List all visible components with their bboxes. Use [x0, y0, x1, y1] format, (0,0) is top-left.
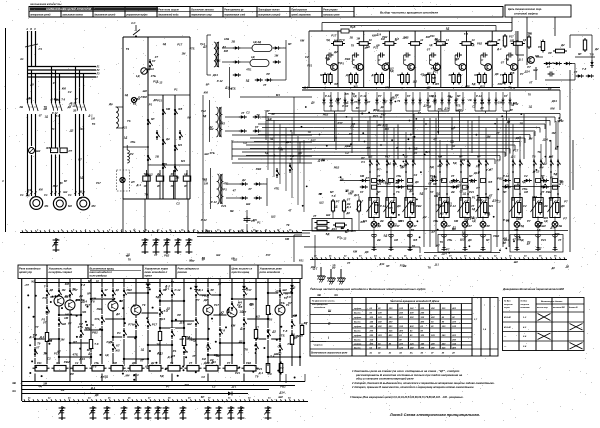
svg-text:К7: К7: [255, 325, 259, 329]
svg-text:4ТБ: 4ТБ: [352, 66, 358, 70]
svg-text:Д2: Д2: [131, 304, 136, 308]
svg-text:скорост: скорост: [504, 304, 513, 306]
svg-text:Т9: Т9: [500, 73, 504, 77]
svg-text:Р17: Р17: [96, 181, 101, 185]
svg-text:Т9: Т9: [559, 179, 563, 183]
svg-text:рсом шпинделя: рсом шпинделя: [259, 270, 281, 274]
svg-text:К7: К7: [407, 94, 411, 98]
svg-text:2В: 2В: [519, 122, 524, 126]
svg-text:400: 400: [430, 316, 435, 319]
svg-text:1М: 1М: [274, 54, 279, 58]
svg-text:2В: 2В: [379, 219, 384, 223]
svg-text:замыкание конта: замыкание конта: [62, 15, 83, 17]
svg-text:Включ: Включ: [354, 331, 361, 333]
svg-text:Р7: Р7: [378, 94, 382, 98]
svg-text:Д-1: Д-1: [164, 287, 170, 291]
svg-text:Р-12: Р-12: [325, 94, 331, 98]
svg-text:К7: К7: [44, 351, 48, 355]
svg-text:Д14: Д14: [278, 390, 285, 394]
svg-text:Тб: Тб: [203, 178, 207, 182]
svg-text:Ш2: Ш2: [439, 204, 444, 208]
svg-text:С2: С2: [497, 199, 501, 203]
svg-text:С2: С2: [28, 188, 32, 192]
svg-text:Тб: Тб: [284, 296, 288, 300]
svg-text:2В: 2В: [175, 176, 180, 180]
svg-text:1М: 1М: [528, 136, 533, 140]
svg-text:8Р: 8Р: [537, 224, 541, 228]
svg-text:Д8: Д8: [135, 97, 140, 101]
svg-text:45-140: 45-140: [503, 326, 512, 329]
svg-text:Д8: Д8: [494, 72, 499, 76]
svg-text:45-140: 45-140: [503, 316, 512, 319]
svg-text:Включаемые: Включаемые: [312, 341, 327, 343]
svg-text:орости вращ: орости вращ: [232, 271, 250, 274]
svg-text:Ш2: Ш2: [326, 213, 331, 217]
svg-text:Р1: Р1: [325, 56, 329, 60]
svg-text:Ш2: Ш2: [63, 190, 68, 194]
svg-text:5Д: 5Д: [450, 140, 454, 144]
svg-text:0Т: 0Т: [451, 174, 455, 178]
svg-text:1М: 1М: [486, 135, 491, 139]
svg-text:Тб: Тб: [93, 365, 97, 369]
svg-text:Д2: Д2: [456, 183, 461, 187]
svg-text:0Т: 0Т: [427, 48, 431, 52]
svg-text:400: 400: [409, 325, 414, 328]
svg-text:Р17: Р17: [513, 149, 518, 153]
svg-text:осле реверса: осле реверса: [90, 275, 108, 278]
svg-text:М4: М4: [181, 159, 185, 163]
svg-text:Ж5: Ж5: [30, 279, 36, 283]
svg-text:С: С: [34, 28, 36, 31]
svg-text:РВ2: РВ2: [497, 177, 503, 181]
svg-text:1Д: 1Д: [124, 135, 128, 139]
svg-text:КМ: КМ: [185, 383, 190, 387]
svg-text:Т-8: Т-8: [56, 114, 60, 118]
svg-text:Ш2: Ш2: [143, 89, 148, 93]
svg-text:Ш2: Ш2: [385, 61, 390, 65]
svg-text:8Р: 8Р: [266, 72, 270, 76]
svg-text:200: 200: [420, 348, 425, 350]
svg-text:1М: 1М: [551, 131, 556, 135]
svg-text:С2: С2: [68, 90, 72, 94]
svg-text:Р7: Р7: [377, 167, 381, 171]
svg-text:0Т: 0Т: [243, 310, 247, 314]
svg-text:4ТБ: 4ТБ: [188, 46, 194, 50]
svg-text:Тб: Тб: [144, 193, 148, 197]
svg-text:Р7: Р7: [128, 323, 132, 327]
svg-text:Включаемые диапаз: Включаемые диапаз: [541, 300, 563, 303]
svg-text:8Р: 8Р: [503, 190, 507, 194]
svg-text:С2: С2: [352, 122, 356, 126]
svg-text:Т-8: Т-8: [61, 98, 65, 102]
svg-text:Д14: Д14: [159, 317, 166, 321]
svg-text:Ш2: Ш2: [36, 149, 41, 153]
svg-text:1Д: 1Д: [125, 93, 129, 97]
svg-text:2В: 2В: [558, 224, 563, 228]
svg-text:Тб: Тб: [451, 127, 455, 131]
svg-text:К7: К7: [288, 301, 292, 305]
svg-text:С1: С1: [44, 193, 48, 197]
svg-text:контакт: контакт: [521, 307, 530, 309]
svg-text:5Д: 5Д: [435, 62, 439, 66]
svg-text:высок скор: высок скор: [537, 307, 549, 309]
svg-text:4Т: 4Т: [417, 111, 422, 115]
svg-text:Р7: Р7: [476, 164, 480, 168]
svg-text:Тб: Тб: [90, 323, 94, 327]
svg-text:Ж5: Ж5: [412, 238, 418, 242]
svg-text:Д8: Д8: [479, 106, 484, 110]
svg-text:муфта: муфта: [354, 325, 362, 328]
svg-text:0Т: 0Т: [347, 197, 351, 201]
svg-text:К7: К7: [432, 230, 436, 234]
svg-text:0Т: 0Т: [496, 131, 500, 135]
svg-text:4ТБ: 4ТБ: [150, 74, 156, 78]
svg-text:400: 400: [369, 343, 374, 346]
svg-text:4ТБ: 4ТБ: [274, 290, 280, 294]
svg-text:4ТБ: 4ТБ: [432, 219, 438, 223]
svg-text:8Р: 8Р: [503, 241, 507, 245]
svg-text:№ Вкл: № Вкл: [521, 300, 528, 303]
svg-text:Р-12: Р-12: [374, 108, 380, 112]
svg-text:стоповой муфты: стоповой муфты: [514, 12, 539, 16]
svg-text:4Т: 4Т: [240, 111, 245, 115]
svg-text:250: 250: [441, 344, 446, 346]
svg-text:6Р: 6Р: [397, 73, 401, 77]
svg-text:Р1: Р1: [341, 61, 345, 65]
svg-text:4Т: 4Т: [451, 144, 456, 148]
svg-text:5Д: 5Д: [29, 96, 33, 100]
svg-text:включен ВМ: включен ВМ: [553, 307, 565, 309]
svg-text:А1: А1: [19, 57, 24, 61]
svg-text:200: 200: [369, 331, 374, 333]
svg-text:КМ: КМ: [438, 155, 443, 159]
svg-text:Цепи на реле ск: Цепи на реле ск: [232, 267, 253, 271]
svg-text:Р17: Р17: [400, 264, 405, 268]
svg-text:400: 400: [451, 307, 456, 310]
svg-text:400: 400: [420, 321, 425, 324]
svg-text:4ТБ: 4ТБ: [395, 174, 401, 178]
svg-text:8Р: 8Р: [298, 152, 302, 156]
svg-text:Ж5: Ж5: [343, 92, 349, 96]
svg-text:8Р: 8Р: [578, 52, 582, 56]
svg-text:2В: 2В: [328, 104, 333, 108]
svg-text:Ш2: Ш2: [209, 127, 214, 131]
svg-text:Р7: Р7: [349, 132, 353, 136]
svg-text:Р7: Р7: [458, 74, 462, 78]
svg-text:6Р: 6Р: [79, 335, 83, 339]
svg-text:К7: К7: [384, 99, 388, 103]
svg-text:рассматривать В качестве со: рассматривать В качестве составных тольк…: [355, 373, 463, 377]
svg-text:6Р: 6Р: [201, 395, 205, 399]
svg-text:Ж5: Ж5: [479, 101, 485, 105]
svg-text:Выключение вращ: Выключение вращ: [90, 267, 115, 271]
svg-text:Р1: Р1: [257, 221, 261, 225]
svg-text:1Д: 1Д: [80, 176, 84, 180]
svg-text:К7: К7: [360, 190, 364, 194]
svg-text:5Д: 5Д: [203, 114, 207, 118]
svg-text:Ш2: Ш2: [187, 322, 192, 326]
svg-text:РВ2: РВ2: [164, 254, 170, 258]
svg-text:С2: С2: [47, 356, 51, 360]
svg-text:0Т: 0Т: [192, 259, 195, 263]
svg-text:Д2: Д2: [156, 172, 161, 176]
svg-text:Р1: Р1: [171, 280, 175, 284]
svg-text:К7: К7: [518, 217, 522, 221]
svg-text:8Р: 8Р: [202, 258, 205, 262]
svg-text:Р-12: Р-12: [211, 200, 217, 204]
svg-text:Д-1: Д-1: [518, 57, 524, 61]
svg-text:Р21: Р21: [235, 371, 240, 375]
svg-text:Р17: Р17: [177, 42, 182, 46]
svg-text:Д2: Д2: [238, 339, 243, 343]
svg-text:Т-8: Т-8: [44, 285, 49, 289]
svg-text:0Т: 0Т: [529, 81, 533, 85]
svg-text:Р17: Р17: [375, 203, 380, 207]
svg-text:4Т: 4Т: [232, 188, 237, 192]
svg-text:1Д: 1Д: [45, 115, 48, 119]
svg-text:Д2: Д2: [560, 43, 565, 47]
svg-text:Управление реве: Управление реве: [260, 267, 283, 271]
svg-text:Д14: Д14: [224, 86, 231, 90]
svg-text:Предохранит: Предохранит: [291, 9, 307, 12]
svg-text:Р7: Р7: [337, 235, 341, 239]
svg-text:Т-8: Т-8: [511, 86, 516, 90]
svg-text:1Д: 1Д: [251, 55, 255, 59]
svg-text:С2: С2: [393, 223, 397, 227]
svg-text:Р1: Р1: [391, 211, 395, 215]
svg-text:Т-8: Т-8: [45, 310, 50, 314]
svg-text:4Т: 4Т: [170, 172, 175, 176]
svg-text:Т-8: Т-8: [33, 333, 38, 337]
svg-text:4Т: 4Т: [432, 138, 437, 142]
svg-text:КМ: КМ: [300, 39, 305, 43]
svg-text:8В: 8В: [230, 209, 234, 213]
svg-text:Р21: Р21: [498, 82, 503, 86]
svg-text:Р1: Р1: [173, 349, 177, 353]
svg-text:цепей управлени: цепей управлени: [291, 14, 311, 17]
svg-text:2В: 2В: [213, 353, 219, 357]
svg-text:Ш2: Ш2: [514, 260, 519, 264]
svg-text:М4: М4: [178, 143, 182, 147]
svg-text:1Д: 1Д: [126, 253, 129, 257]
svg-text:Д2: Д2: [202, 45, 207, 49]
svg-text:Таблица частот вращения шпи: Таблица частот вращения шпинделя и Включ…: [310, 287, 426, 291]
svg-text:5Д: 5Д: [390, 69, 394, 73]
svg-text:Р21: Р21: [37, 361, 42, 365]
svg-text:Д-1: Д-1: [90, 386, 96, 390]
svg-text:Д14: Д14: [441, 252, 448, 256]
svg-text:Р17: Р17: [411, 203, 416, 207]
svg-text:200: 200: [377, 326, 382, 328]
svg-text:Диаграмма Включения переключ: Диаграмма Включения переключателя ВМ: [502, 287, 564, 291]
svg-text:Реле задержки в: Реле задержки в: [178, 267, 200, 271]
svg-text:Р7: Р7: [563, 216, 567, 220]
svg-text:М4: М4: [514, 228, 518, 232]
svg-text:400: 400: [388, 334, 393, 337]
svg-text:6Р: 6Р: [386, 264, 389, 268]
svg-text:4Т: 4Т: [312, 214, 317, 218]
svg-text:ОБОЗНАЧЕНИЕ АППАРАТУРЫ: ОБОЗНАЧЕНИЕ АППАРАТУРЫ: [30, 4, 62, 6]
svg-text:Т-8: Т-8: [221, 329, 226, 333]
svg-text:8Р: 8Р: [288, 42, 292, 46]
svg-text:КМ: КМ: [204, 91, 209, 95]
svg-text:6Р: 6Р: [64, 179, 67, 183]
svg-text:Ж5: Ж5: [79, 127, 85, 131]
svg-text:Р1: Р1: [174, 88, 178, 92]
svg-text:Д2: Д2: [422, 215, 427, 219]
svg-text:Т-8: Т-8: [290, 154, 295, 158]
svg-text:Д-1: Д-1: [496, 47, 502, 51]
svg-text:Включ: Включ: [354, 340, 361, 342]
svg-text:Д14: Д14: [473, 171, 480, 175]
svg-text:Р-12: Р-12: [360, 94, 366, 98]
svg-text:1М: 1М: [60, 337, 65, 341]
svg-text:2В: 2В: [349, 190, 354, 194]
svg-text:РВ2: РВ2: [385, 181, 391, 185]
svg-text:М4: М4: [85, 326, 89, 330]
svg-text:Д-1: Д-1: [167, 355, 173, 359]
svg-text:Д2: Д2: [115, 312, 120, 316]
svg-text:Д2: Д2: [69, 128, 74, 132]
svg-text:Д8: Д8: [58, 181, 63, 185]
svg-text:1Д: 1Д: [429, 43, 432, 47]
svg-text:8Р: 8Р: [356, 106, 360, 110]
svg-text:К7: К7: [469, 224, 473, 228]
svg-text:ения шпинделя п: ения шпинделя п: [90, 270, 113, 274]
svg-text:РВ2: РВ2: [246, 361, 252, 365]
svg-text:4Т: 4Т: [412, 66, 417, 70]
svg-text:Тб: Тб: [133, 102, 137, 106]
svg-text:Т9: Т9: [307, 130, 311, 134]
svg-text:С2: С2: [278, 345, 282, 349]
svg-text:Д-1: Д-1: [346, 205, 352, 209]
svg-text:Р7: Р7: [527, 219, 531, 223]
svg-text:ожен шпинделя п: ожен шпинделя п: [145, 270, 168, 274]
svg-text:Ж5: Ж5: [509, 71, 515, 75]
svg-text:КМ: КМ: [360, 174, 365, 178]
svg-text:С1: С1: [20, 193, 24, 197]
svg-text:8Р: 8Р: [177, 313, 181, 317]
svg-text:8Р: 8Р: [510, 108, 513, 112]
svg-text:Р7: Р7: [196, 298, 200, 302]
svg-text:5Д: 5Д: [472, 82, 476, 86]
svg-text:Р21: Р21: [124, 369, 129, 373]
svg-text:Ж5: Ж5: [45, 146, 51, 150]
svg-text:Тб: Тб: [412, 244, 416, 248]
svg-text:Ш2: Ш2: [216, 253, 221, 257]
svg-text:4ТБ: 4ТБ: [245, 68, 251, 72]
svg-text:РВ2: РВ2: [323, 113, 329, 117]
svg-text:Т9: Т9: [37, 342, 41, 346]
svg-text:4ТБ: 4ТБ: [273, 187, 279, 191]
svg-text:0Т: 0Т: [249, 187, 253, 191]
svg-text:Д-1: Д-1: [370, 73, 376, 77]
svg-text:Р21: Р21: [65, 294, 70, 298]
svg-text:Д2: Д2: [156, 351, 161, 355]
svg-text:Д2: Д2: [203, 298, 208, 302]
svg-text:2В: 2В: [349, 36, 353, 40]
svg-text:Реле управл: Реле управл: [323, 10, 338, 12]
svg-text:Р7: Р7: [79, 322, 83, 326]
svg-text:Ш2: Ш2: [246, 202, 251, 206]
svg-text:Тб: Тб: [532, 155, 536, 159]
svg-text:Д2: Д2: [87, 352, 92, 356]
svg-text:Р7: Р7: [476, 186, 480, 190]
svg-text:Р7: Р7: [101, 375, 105, 379]
svg-text:2В: 2В: [19, 105, 24, 109]
svg-text:КМ: КМ: [65, 282, 70, 286]
svg-text:Р1: Р1: [56, 98, 60, 102]
svg-text:Тб: Тб: [128, 258, 132, 262]
svg-text:М4: М4: [184, 350, 188, 354]
svg-text:Д14: Д14: [331, 227, 338, 231]
svg-text:Д14: Д14: [524, 70, 531, 74]
svg-text:Р1: Р1: [39, 47, 43, 51]
svg-text:8Т: 8Т: [538, 45, 542, 49]
svg-text:С1: С1: [68, 193, 72, 197]
svg-text:Д8: Д8: [364, 250, 369, 254]
svg-text:Р17: Р17: [54, 351, 59, 355]
svg-text:Т-8: Т-8: [163, 309, 168, 313]
svg-text:Тр2: Тр2: [201, 109, 206, 113]
svg-text:4Т: 4Т: [546, 65, 551, 69]
svg-text:6Р: 6Р: [211, 288, 215, 292]
svg-text:М2: М2: [68, 204, 72, 208]
svg-text:5Д: 5Д: [334, 205, 338, 209]
svg-text:Р7: Р7: [68, 321, 72, 325]
svg-text:Д8: Д8: [396, 204, 401, 208]
svg-text:Р1: Р1: [51, 127, 55, 131]
svg-text:250: 250: [369, 335, 374, 337]
svg-text:Ж5: Ж5: [114, 349, 120, 353]
svg-text:РВ2: РВ2: [280, 385, 286, 389]
svg-text:Т9: Т9: [255, 375, 259, 379]
svg-text:Д14: Д14: [430, 176, 437, 180]
svg-text:Управление торм: Управление торм: [145, 267, 169, 271]
svg-text:5Д: 5Д: [414, 146, 418, 150]
svg-text:РВ2: РВ2: [382, 35, 388, 39]
svg-text:Тб: Тб: [79, 196, 83, 200]
svg-text:Т9: Т9: [156, 343, 160, 347]
svg-text:Т-8: Т-8: [94, 342, 99, 346]
svg-text:Ш2: Ш2: [233, 258, 238, 262]
svg-text:Р7: Р7: [496, 158, 500, 162]
svg-text:250: 250: [388, 326, 393, 328]
svg-text:Ж5: Ж5: [55, 361, 60, 365]
svg-text:6Р: 6Р: [330, 190, 334, 194]
svg-text:8Р: 8Р: [486, 211, 490, 215]
svg-text:Ш2: Ш2: [542, 224, 547, 228]
svg-text:Д8: Д8: [310, 100, 315, 104]
svg-text:С2: С2: [243, 141, 247, 145]
svg-text:Д-1: Д-1: [432, 98, 438, 102]
svg-text:М4: М4: [442, 42, 446, 46]
svg-text:А: А: [25, 28, 28, 31]
svg-text:Лист3 Схема электрическа: Лист3 Схема электрическая принципиальная…: [389, 413, 480, 417]
svg-text:3Р: 3Р: [171, 185, 174, 188]
svg-text:4Т: 4Т: [376, 174, 381, 178]
svg-text:выпрямит устрой: выпрямит устрой: [258, 14, 281, 17]
svg-text:Д-1: Д-1: [317, 158, 323, 162]
svg-text:Ш2: Ш2: [368, 155, 373, 159]
svg-text:1М: 1М: [182, 52, 187, 56]
svg-text:РВ2: РВ2: [435, 38, 441, 42]
svg-text:Цепь динамического тор-: Цепь динамического тор-: [508, 7, 542, 11]
svg-text:Р17: Р17: [266, 253, 271, 257]
svg-text:Д2: Д2: [115, 288, 120, 292]
svg-text:С2: С2: [305, 55, 309, 59]
svg-text:РВ2: РВ2: [202, 294, 208, 298]
